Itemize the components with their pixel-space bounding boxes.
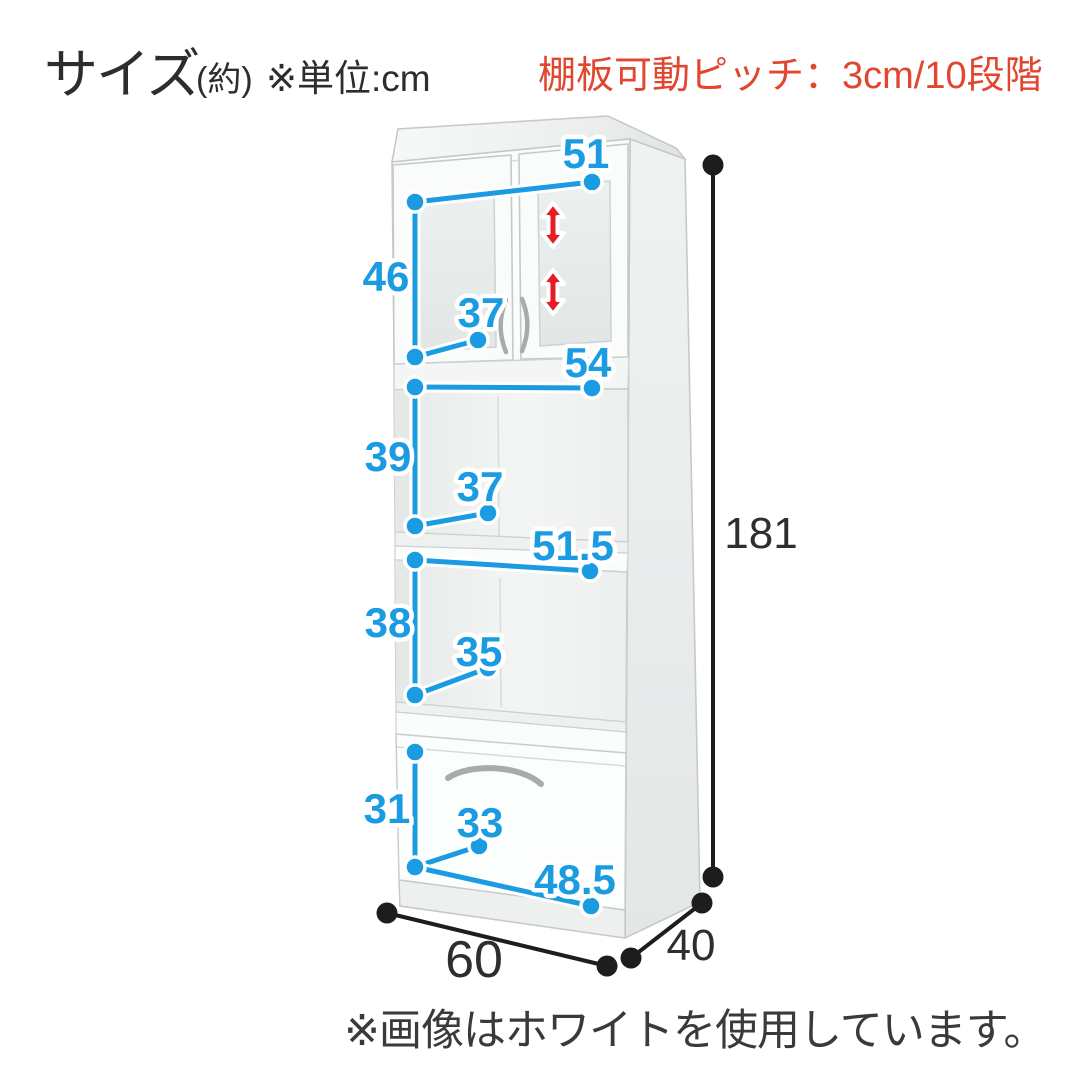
dimension-endpoint-dot — [405, 347, 425, 367]
dimension-endpoint-dot — [405, 192, 425, 212]
overall-width-value: 60 — [445, 931, 503, 989]
upper-width-value: 51 — [563, 130, 610, 177]
dimension-endpoint-dot — [703, 155, 724, 176]
dimension-endpoint-dot — [405, 857, 425, 877]
cabinet-side-panel — [625, 139, 700, 938]
dimension-endpoint-dot — [377, 903, 398, 924]
drawer-height-value: 31 — [364, 785, 411, 832]
open-lower-width-value: 51.5 — [532, 522, 614, 569]
dimension-endpoint-dot — [703, 867, 724, 888]
cabinet-dimension-diagram: 181 60 40 — [0, 0, 1080, 1076]
upper-depth-value: 37 — [458, 289, 505, 336]
dimension-endpoint-dot — [405, 550, 425, 570]
open-upper-width-value: 54 — [565, 339, 612, 386]
dimension-endpoint-dot — [405, 685, 425, 705]
open-upper-depth-value: 37 — [457, 463, 504, 510]
open-lower-depth-value: 35 — [456, 628, 503, 675]
upper-height-value: 46 — [363, 253, 410, 300]
drawer-depth-value: 33 — [457, 799, 504, 846]
color-note: ※画像はホワイトを使用しています。 — [344, 996, 1045, 1058]
dimension-endpoint-dot — [692, 893, 713, 914]
dimension-endpoint-dot — [405, 742, 425, 762]
dimension-endpoint-dot — [405, 377, 425, 397]
open-shelf-lower-interior — [395, 560, 627, 722]
open-lower-height-value: 38 — [365, 599, 412, 646]
open-upper-height-value: 39 — [365, 433, 412, 480]
dimension-endpoint-dot — [597, 956, 618, 977]
dim-open-upper-width — [415, 387, 592, 388]
dim-overall-height: 181 — [703, 155, 798, 888]
size-diagram-page: サイズ (約) ※単位:cm 棚板可動ピッチ：3cm/10段階 — [0, 0, 1080, 1076]
dimension-endpoint-dot — [621, 948, 642, 969]
overall-depth-value: 40 — [667, 921, 716, 970]
drawer-width-value: 48.5 — [534, 856, 616, 903]
overall-height-value: 181 — [724, 509, 797, 558]
dimension-endpoint-dot — [405, 516, 425, 536]
dimension-line — [415, 387, 592, 388]
